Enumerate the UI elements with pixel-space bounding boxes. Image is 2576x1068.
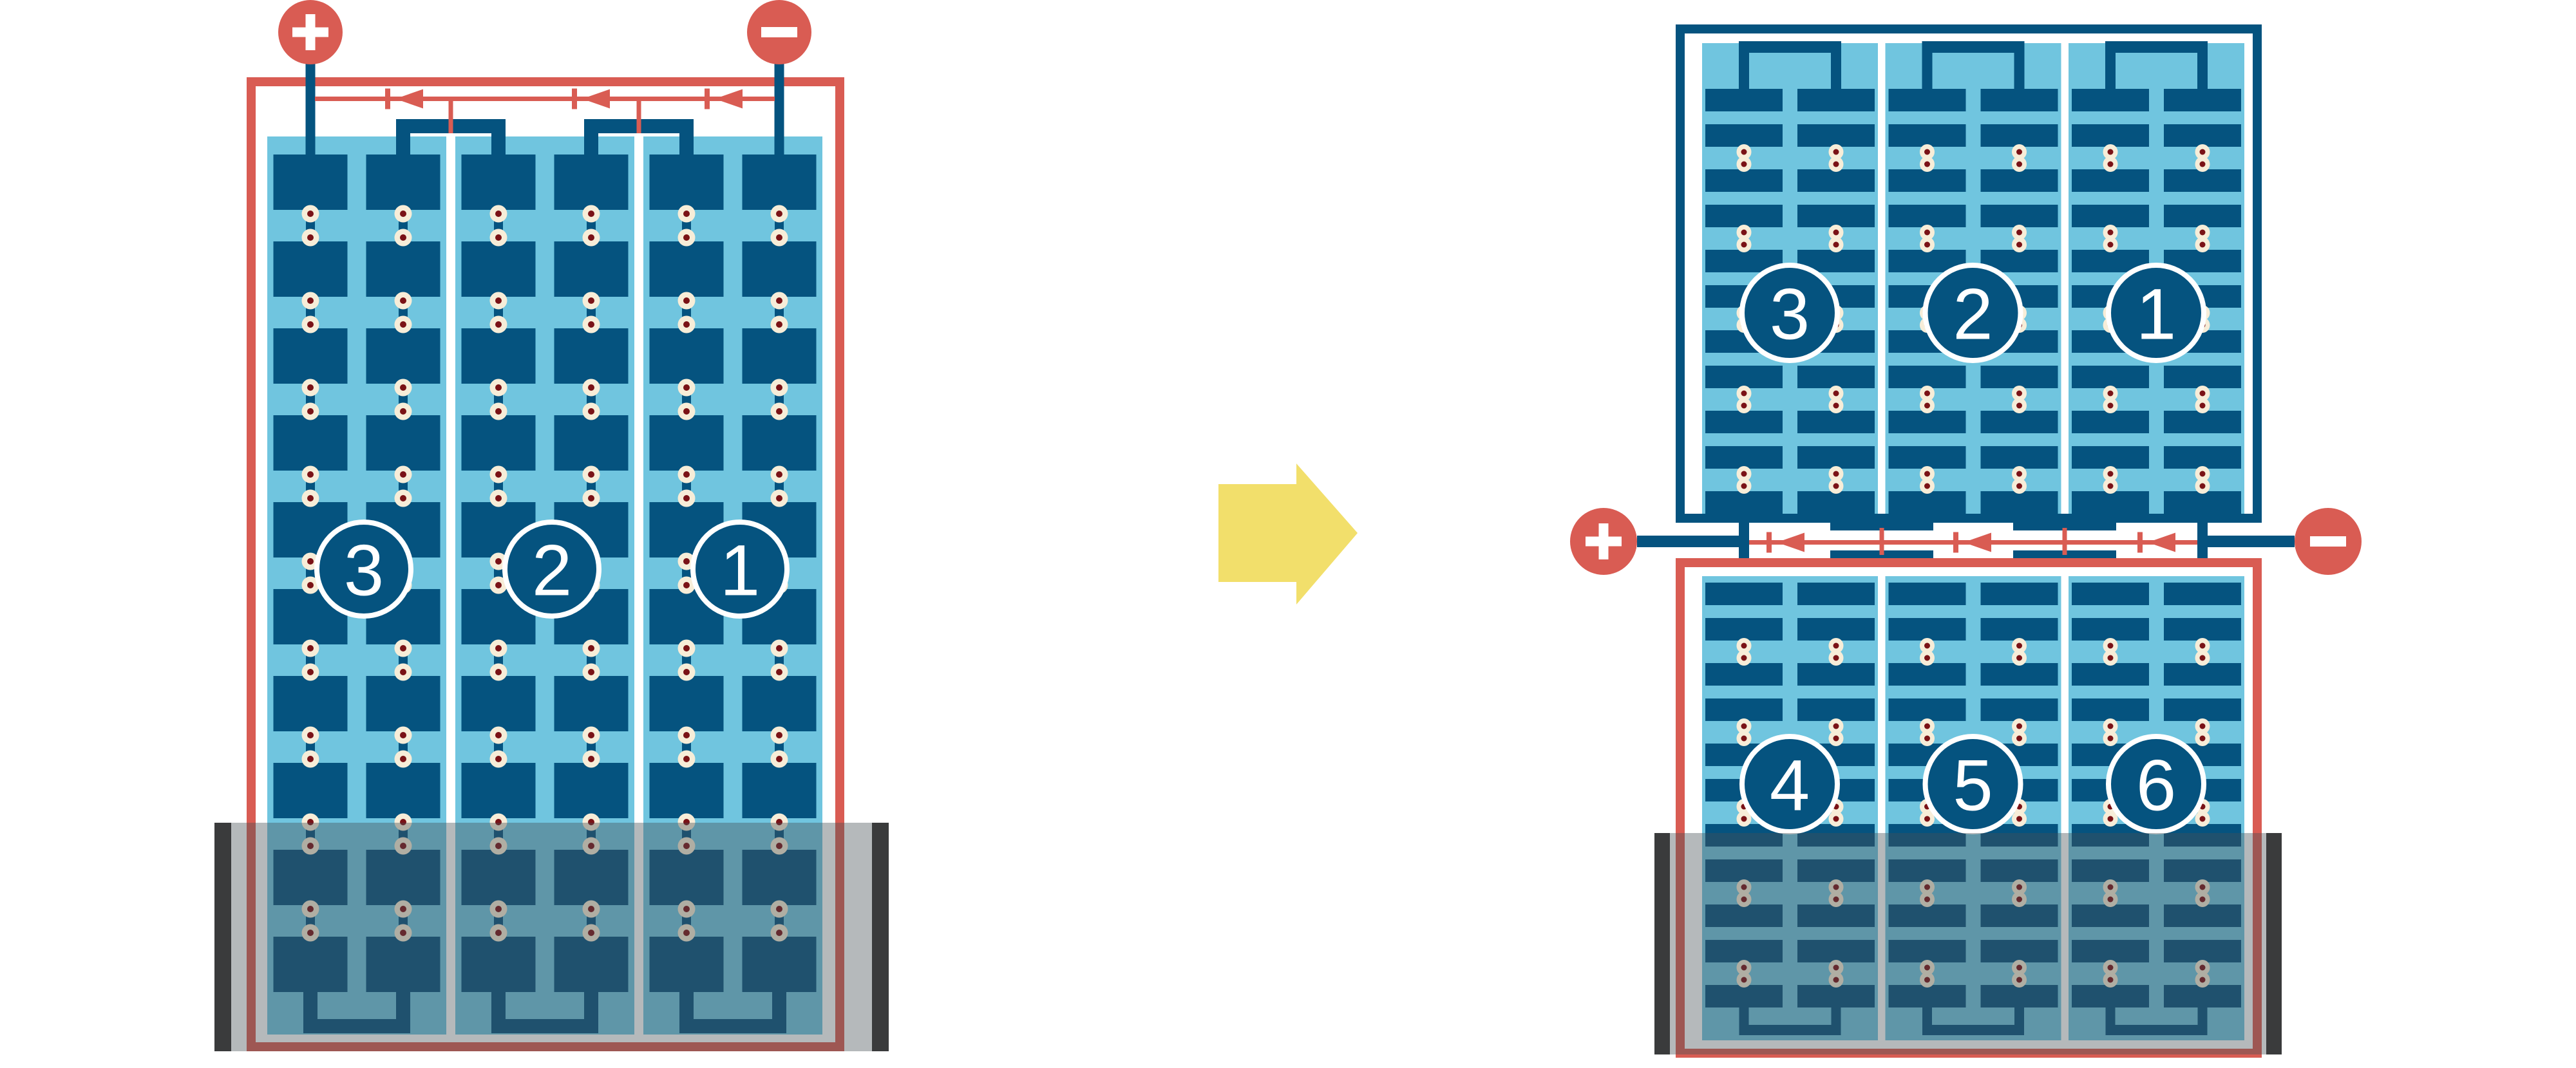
solar-cell: [554, 763, 629, 818]
string-staple-bar: [1739, 41, 1841, 53]
solar-cell: [274, 155, 348, 210]
bypass-diode-icon: [1777, 533, 1804, 552]
inter-string-bridge-leg: [491, 132, 506, 158]
solder-dot-core: [1924, 162, 1930, 167]
solar-cell: [462, 241, 536, 297]
string-label-text: 2: [532, 530, 572, 610]
string-label-text: 2: [1953, 274, 1993, 354]
solar-cell: [1981, 411, 2058, 433]
solder-dot-core: [683, 408, 690, 415]
solar-cell: [743, 241, 817, 297]
solar-cell: [274, 241, 348, 297]
solar-cell: [1889, 583, 1966, 605]
bypass-diode-cathode-bar: [385, 89, 390, 109]
solder-dot-core: [776, 384, 782, 391]
solder-dot-core: [1924, 242, 1930, 248]
solder-dot-core: [683, 384, 690, 391]
solder-dot-core: [2108, 483, 2114, 489]
solar-cell: [2164, 124, 2241, 147]
solar-module-wiring-diagram: 321321456: [0, 0, 2576, 1068]
solar-cell: [2164, 446, 2241, 469]
solder-dot-core: [400, 408, 406, 415]
solder-dot-core: [400, 234, 406, 241]
solar-cell: [1797, 205, 1875, 227]
solder-dot-core: [495, 471, 502, 478]
solar-cell: [1981, 698, 2058, 721]
solar-cell: [1705, 698, 1783, 721]
solar-cell: [2164, 491, 2241, 514]
solar-cell: [1981, 663, 2058, 686]
solder-dot-core: [1833, 242, 1839, 248]
minus-icon: [761, 27, 797, 37]
solder-dot-core: [1741, 724, 1747, 729]
solar-cell: [554, 415, 629, 471]
diode-tap-tick: [637, 100, 641, 133]
solder-dot-core: [1833, 162, 1839, 167]
solder-dot-core: [2016, 736, 2022, 742]
solder-dot-core: [1924, 816, 1930, 822]
solder-dot-core: [588, 234, 594, 241]
solder-dot-core: [2108, 643, 2114, 649]
solder-dot-core: [307, 756, 314, 762]
bypass-diode-icon: [715, 89, 743, 109]
solder-dot-core: [1833, 403, 1839, 409]
solder-dot-core: [683, 211, 690, 217]
solar-cell: [2072, 491, 2149, 514]
solder-dot-core: [495, 384, 502, 391]
solder-dot-core: [1833, 230, 1839, 236]
solder-dot-core: [588, 408, 594, 415]
solar-cell: [2072, 446, 2149, 469]
solar-cell: [2164, 698, 2241, 721]
solar-cell: [1889, 124, 1966, 147]
solar-cell: [1705, 583, 1783, 605]
solar-cell: [2072, 89, 2149, 111]
shade-overlay: [214, 823, 889, 1051]
string-staple-leg: [2197, 52, 2208, 91]
solder-dot-core: [1833, 736, 1839, 742]
terminal-lead: [2208, 536, 2295, 547]
diode-tap-tick: [2063, 528, 2067, 555]
solder-dot-core: [307, 471, 314, 478]
solder-dot-core: [2016, 149, 2022, 155]
string-staple-bar: [2105, 41, 2208, 53]
solder-dot-core: [307, 732, 314, 738]
solar-cell: [2072, 205, 2149, 227]
solder-dot-core: [2016, 242, 2022, 248]
solar-cell: [743, 763, 817, 818]
solar-cell: [650, 676, 724, 731]
solder-dot-core: [776, 408, 782, 415]
half-cut-top-panel: 321: [1680, 29, 2257, 518]
solder-dot-core: [2200, 471, 2206, 477]
solder-dot-core: [400, 732, 406, 738]
plus-icon: [1599, 523, 1609, 559]
solder-dot-core: [1741, 643, 1747, 649]
plus-icon: [306, 14, 316, 50]
solar-cell: [1797, 411, 1875, 433]
solar-cell: [1981, 89, 2058, 111]
solder-dot-core: [1741, 736, 1747, 742]
solder-dot-core: [2016, 643, 2022, 649]
solar-cell: [2164, 366, 2241, 388]
solder-dot-core: [588, 669, 594, 675]
solar-cell: [2164, 663, 2241, 686]
solar-cell: [1705, 618, 1783, 641]
plus-terminal: [278, 0, 343, 64]
solder-dot-core: [683, 471, 690, 478]
solder-dot-core: [776, 732, 782, 738]
bypass-diode-icon: [582, 89, 610, 109]
solder-dot-core: [1741, 403, 1747, 409]
solar-cell: [650, 763, 724, 818]
solder-dot-core: [683, 321, 690, 328]
solar-cell: [1981, 491, 2058, 514]
solder-dot-core: [400, 669, 406, 675]
solar-cell: [1797, 124, 1875, 147]
solder-dot-core: [307, 408, 314, 415]
bypass-diode-icon: [395, 89, 423, 109]
bypass-diode-icon: [1964, 533, 1991, 552]
solar-cell: [462, 415, 536, 471]
solder-dot-core: [1741, 162, 1747, 167]
solder-dot-core: [495, 645, 502, 651]
solder-dot-core: [400, 297, 406, 304]
solder-dot-core: [588, 297, 594, 304]
solder-dot-core: [2200, 162, 2206, 167]
string-label-text: 5: [1953, 745, 1993, 825]
solder-dot-core: [2200, 736, 2206, 742]
solar-cell: [366, 155, 440, 210]
solder-dot-core: [2108, 655, 2114, 661]
solder-dot-core: [2200, 149, 2206, 155]
solar-cell: [274, 415, 348, 471]
solar-cell: [1797, 698, 1875, 721]
solar-cell: [2072, 411, 2149, 433]
solder-dot-core: [1741, 655, 1747, 661]
solar-cell: [1889, 205, 1966, 227]
solder-dot-core: [2016, 655, 2022, 661]
solar-cell: [554, 328, 629, 384]
left-shading-band: [214, 823, 889, 1051]
solar-cell: [1705, 124, 1783, 147]
solar-cell: [554, 676, 629, 731]
solar-cell: [1705, 205, 1783, 227]
right-shading-band: [1654, 833, 2282, 1054]
solder-dot-core: [1741, 391, 1747, 397]
solder-dot-core: [2016, 162, 2022, 167]
solar-cell: [2072, 583, 2149, 605]
solder-dot-core: [1741, 230, 1747, 236]
solar-cell: [1981, 618, 2058, 641]
solder-dot-core: [588, 732, 594, 738]
shade-cap: [872, 823, 889, 1051]
solar-cell: [1797, 169, 1875, 192]
string-staple-leg: [1922, 52, 1933, 91]
solder-dot-core: [495, 495, 502, 501]
solder-dot-core: [1833, 483, 1839, 489]
inter-string-bridge-leg: [679, 132, 694, 158]
string-staple-leg: [2014, 52, 2025, 91]
solder-dot-core: [588, 321, 594, 328]
solder-dot-core: [1924, 655, 1930, 661]
solder-dot-core: [1741, 816, 1747, 822]
solder-dot-core: [1924, 230, 1930, 236]
solar-cell: [743, 415, 817, 471]
solder-dot-core: [2200, 230, 2206, 236]
solder-dot-core: [683, 732, 690, 738]
solder-dot-core: [1924, 403, 1930, 409]
solder-dot-core: [400, 321, 406, 328]
solder-dot-core: [588, 384, 594, 391]
solar-cell: [366, 763, 440, 818]
solder-dot-core: [2200, 655, 2206, 661]
solar-cell: [1705, 366, 1783, 388]
solder-dot-core: [2108, 230, 2114, 236]
bypass-diode-cathode-bar: [1766, 532, 1772, 553]
solder-dot-core: [307, 297, 314, 304]
solar-cell: [650, 328, 724, 384]
solder-dot-core: [776, 321, 782, 328]
solar-cell: [2164, 583, 2241, 605]
solder-dot-core: [1924, 736, 1930, 742]
solar-cell: [274, 676, 348, 731]
solar-cell: [1889, 169, 1966, 192]
solder-dot-core: [400, 756, 406, 762]
solder-dot-core: [495, 582, 502, 588]
solder-dot-core: [1924, 483, 1930, 489]
bypass-diode-cathode-bar: [572, 89, 577, 109]
solder-dot-core: [307, 495, 314, 501]
solder-dot-core: [1924, 391, 1930, 397]
solder-dot-core: [776, 297, 782, 304]
solder-dot-core: [776, 234, 782, 241]
solar-cell: [2072, 663, 2149, 686]
solar-cell: [1889, 446, 1966, 469]
diode-tap-tick: [1880, 528, 1884, 555]
solder-dot-core: [2200, 643, 2206, 649]
solder-dot-core: [776, 471, 782, 478]
solder-dot-core: [1833, 643, 1839, 649]
solder-dot-core: [2200, 242, 2206, 248]
shade-cap: [214, 823, 231, 1051]
solder-dot-core: [400, 495, 406, 501]
solder-dot-core: [1924, 643, 1930, 649]
solder-dot-core: [588, 471, 594, 478]
solar-cell: [1889, 89, 1966, 111]
solar-cell: [650, 415, 724, 471]
terminal-stem: [775, 62, 784, 158]
solder-dot-core: [2016, 403, 2022, 409]
minus-icon: [2310, 536, 2346, 547]
diagram-canvas: 321321456: [0, 0, 2576, 1068]
bypass-diode-cathode-bar: [2137, 532, 2143, 553]
solder-dot-core: [495, 756, 502, 762]
string-staple-leg: [2105, 52, 2116, 91]
solder-dot-core: [307, 645, 314, 651]
solder-dot-core: [495, 558, 502, 565]
solder-dot-core: [2108, 736, 2114, 742]
string-label-text: 3: [1770, 274, 1810, 354]
solar-cell: [650, 241, 724, 297]
solar-cell: [1797, 583, 1875, 605]
string-staple-leg: [1831, 52, 1841, 91]
solder-dot-core: [2108, 724, 2114, 729]
solar-cell: [2164, 205, 2241, 227]
string-label-text: 1: [720, 530, 760, 610]
solar-cell: [1981, 205, 2058, 227]
shade-overlay: [1654, 833, 2282, 1054]
solar-cell: [462, 155, 536, 210]
solar-cell: [2164, 169, 2241, 192]
solder-dot-core: [307, 321, 314, 328]
solar-cell: [1981, 169, 2058, 192]
solar-cell: [1797, 446, 1875, 469]
solder-dot-core: [1833, 816, 1839, 822]
right-arrow-icon: [1218, 464, 1358, 604]
solar-cell: [366, 676, 440, 731]
string-label-text: 3: [344, 530, 384, 610]
solar-cell: [554, 241, 629, 297]
solder-dot-core: [2108, 242, 2114, 248]
solder-dot-core: [588, 756, 594, 762]
solder-dot-core: [2016, 391, 2022, 397]
solder-dot-core: [400, 211, 406, 217]
solder-dot-core: [495, 321, 502, 328]
solder-dot-core: [1924, 149, 1930, 155]
solder-dot-core: [2200, 724, 2206, 729]
solder-dot-core: [307, 211, 314, 217]
solder-dot-core: [683, 669, 690, 675]
solar-cell: [1889, 366, 1966, 388]
string-staple-bar: [1922, 41, 2025, 53]
string-staple-leg: [1739, 52, 1749, 91]
solder-dot-core: [307, 234, 314, 241]
bypass-diode-icon: [2148, 533, 2175, 552]
solar-cell: [2072, 618, 2149, 641]
solder-dot-core: [400, 645, 406, 651]
solar-cell: [1797, 366, 1875, 388]
solder-dot-core: [683, 582, 690, 588]
solder-dot-core: [2016, 724, 2022, 729]
solar-cell: [1889, 618, 1966, 641]
solar-cell: [366, 328, 440, 384]
solar-cell: [743, 328, 817, 384]
solder-dot-core: [495, 211, 502, 217]
solar-cell: [2164, 618, 2241, 641]
solar-cell: [1797, 618, 1875, 641]
solar-cell: [1705, 663, 1783, 686]
solar-cell: [1981, 124, 2058, 147]
solder-dot-core: [2108, 391, 2114, 397]
solar-cell: [1889, 411, 1966, 433]
solder-dot-core: [776, 495, 782, 501]
solar-cell: [2164, 411, 2241, 433]
solder-dot-core: [588, 495, 594, 501]
solar-cell: [1705, 446, 1783, 469]
solder-dot-core: [495, 234, 502, 241]
solder-dot-core: [1924, 471, 1930, 477]
solder-dot-core: [1833, 149, 1839, 155]
solder-dot-core: [1741, 149, 1747, 155]
solar-cell: [1889, 698, 1966, 721]
solder-dot-core: [2108, 149, 2114, 155]
solder-dot-core: [400, 471, 406, 478]
solar-cell: [2072, 366, 2149, 388]
inter-string-bridge-leg: [396, 132, 410, 158]
solar-cell: [462, 763, 536, 818]
solar-cell: [1797, 89, 1875, 111]
solar-cell: [1981, 583, 2058, 605]
solar-cell: [1705, 89, 1783, 111]
bypass-diode-cathode-bar: [705, 89, 710, 109]
solder-dot-core: [1741, 471, 1747, 477]
solder-dot-core: [683, 297, 690, 304]
solar-cell: [1981, 446, 2058, 469]
solder-dot-core: [588, 645, 594, 651]
solder-dot-core: [2108, 816, 2114, 822]
solder-dot-core: [495, 669, 502, 675]
terminal-jumper: [2197, 523, 2208, 558]
solar-cell: [2072, 124, 2149, 147]
string-label-text: 4: [1770, 745, 1810, 825]
solder-dot-core: [2016, 230, 2022, 236]
solder-dot-core: [683, 645, 690, 651]
solder-dot-core: [307, 558, 314, 565]
solar-cell: [650, 155, 724, 210]
string-label-text: 1: [2136, 274, 2176, 354]
shade-cap: [1654, 833, 1670, 1054]
solder-dot-core: [307, 582, 314, 588]
solar-cell: [1981, 366, 2058, 388]
solder-dot-core: [495, 297, 502, 304]
minus-terminal: [2295, 508, 2362, 575]
inter-string-bridge-leg: [584, 132, 598, 158]
solar-cell: [743, 676, 817, 731]
solder-dot-core: [2200, 403, 2206, 409]
solar-cell: [1797, 663, 1875, 686]
solar-cell: [2164, 89, 2241, 111]
solder-dot-core: [2200, 483, 2206, 489]
solder-dot-core: [307, 384, 314, 391]
solder-dot-core: [683, 558, 690, 565]
solar-cell: [2072, 169, 2149, 192]
solder-dot-core: [683, 495, 690, 501]
solder-dot-core: [495, 732, 502, 738]
solar-cell: [366, 415, 440, 471]
solder-dot-core: [1833, 391, 1839, 397]
solder-dot-core: [2200, 391, 2206, 397]
solar-cell: [274, 763, 348, 818]
solder-dot-core: [2200, 816, 2206, 822]
solder-dot-core: [2108, 162, 2114, 167]
solar-cell: [743, 155, 817, 210]
terminal-jumper: [1739, 523, 1749, 558]
solder-dot-core: [776, 756, 782, 762]
plus-terminal: [1570, 508, 1637, 575]
diode-tap-tick: [449, 100, 453, 133]
terminal-stem: [306, 62, 316, 158]
solder-dot-core: [1741, 483, 1747, 489]
solar-cell: [1705, 169, 1783, 192]
solar-cell: [554, 155, 629, 210]
solar-cell: [2072, 698, 2149, 721]
string-label-text: 6: [2136, 745, 2176, 825]
terminal-lead: [1637, 536, 1739, 547]
solar-cell: [274, 328, 348, 384]
solder-dot-core: [307, 669, 314, 675]
solder-dot-core: [400, 384, 406, 391]
